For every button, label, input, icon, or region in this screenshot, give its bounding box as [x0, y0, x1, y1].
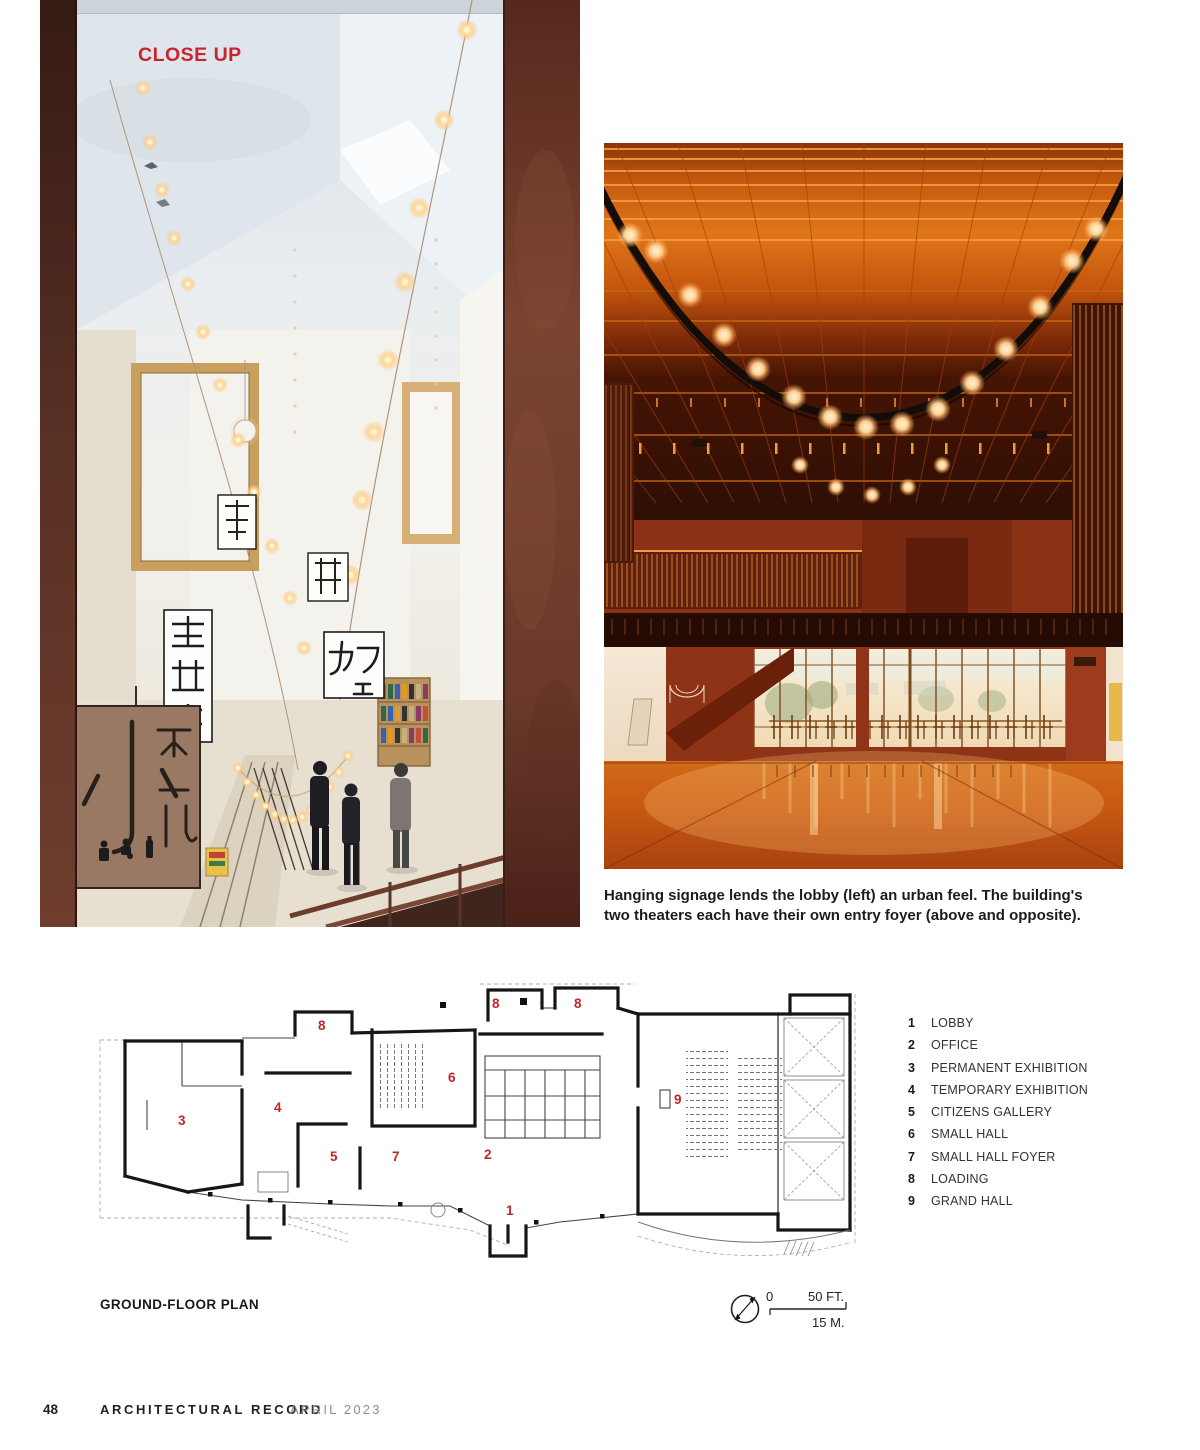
- legend-row: 5CITIZENS GALLERY: [908, 1105, 1088, 1127]
- plan-apron: [288, 1216, 850, 1256]
- legend-number: 3: [908, 1061, 931, 1075]
- svg-text:15 M.: 15 M.: [812, 1315, 845, 1330]
- legend-label: GRAND HALL: [931, 1194, 1013, 1208]
- plan-room-numbers: 34576219888: [178, 996, 682, 1218]
- grand-hall-seats-2: [738, 1052, 782, 1156]
- legend-label: PERMANENT EXHIBITION: [931, 1061, 1088, 1075]
- legend-number: 8: [908, 1172, 931, 1186]
- legend-row: 2OFFICE: [908, 1038, 1088, 1060]
- legend-number: 2: [908, 1038, 931, 1052]
- room-number-4: 4: [274, 1100, 282, 1115]
- room-number-6: 6: [448, 1070, 456, 1085]
- compass-and-scale: 0 50 FT. 15 M.: [726, 1283, 896, 1335]
- room-number-9: 9: [674, 1092, 682, 1107]
- svg-text:0: 0: [766, 1289, 773, 1304]
- legend-row: 1LOBBY: [908, 1016, 1088, 1038]
- theater-foyer-photo: [604, 143, 1123, 869]
- plan-legend: 1LOBBY2OFFICE3PERMANENT EXHIBITION4TEMPO…: [908, 1016, 1088, 1217]
- room-number-2: 2: [484, 1147, 492, 1162]
- legend-label: SMALL HALL: [931, 1127, 1008, 1141]
- legend-number: 6: [908, 1127, 931, 1141]
- close-up-heading: CLOSE UP: [138, 44, 242, 67]
- legend-number: 1: [908, 1016, 931, 1030]
- hanging-sign-small-1: [218, 495, 256, 549]
- hanging-sign-small-2: [308, 553, 348, 601]
- page-number: 48: [43, 1402, 58, 1417]
- room-number-3: 3: [178, 1113, 186, 1128]
- room-number-8: 8: [492, 996, 500, 1011]
- scale-bar: 0 50 FT. 15 M.: [766, 1289, 846, 1330]
- legend-label: CITIZENS GALLERY: [931, 1105, 1052, 1119]
- legend-label: LOBBY: [931, 1016, 974, 1030]
- legend-row: 9GRAND HALL: [908, 1194, 1088, 1216]
- legend-row: 6SMALL HALL: [908, 1127, 1088, 1149]
- backstage-cells: [784, 1018, 844, 1200]
- small-hall-seats: [376, 1042, 424, 1108]
- legend-label: TEMPORARY EXHIBITION: [931, 1083, 1088, 1097]
- photo-caption: Hanging signage lends the lobby (left) a…: [604, 886, 1084, 925]
- legend-label: SMALL HALL FOYER: [931, 1150, 1056, 1164]
- plan-title: GROUND-FLOOR PLAN: [100, 1297, 259, 1312]
- legend-number: 4: [908, 1083, 931, 1097]
- room-number-7: 7: [392, 1149, 400, 1164]
- magazine-page: CLOSE UP: [0, 0, 1200, 1450]
- svg-text:50 FT.: 50 FT.: [808, 1289, 844, 1304]
- issue-date: APRIL 2023: [290, 1402, 382, 1417]
- legend-number: 9: [908, 1194, 931, 1208]
- foyer-photo-art: [604, 143, 1123, 869]
- legend-row: 8LOADING: [908, 1172, 1088, 1194]
- cafe-sign: [324, 632, 384, 698]
- lobby-photo-art: [40, 0, 580, 927]
- legend-number: 7: [908, 1150, 931, 1164]
- legend-row: 7SMALL HALL FOYER: [908, 1150, 1088, 1172]
- grand-hall-seats: [686, 1050, 728, 1158]
- room-number-8: 8: [318, 1018, 326, 1033]
- legend-label: OFFICE: [931, 1038, 978, 1052]
- caption-line-1: Hanging signage lends the lobby (left) a…: [604, 886, 1084, 906]
- lobby-photo: CLOSE UP: [40, 0, 580, 927]
- legend-row: 3PERMANENT EXHIBITION: [908, 1061, 1088, 1083]
- north-arrow-icon: [732, 1296, 759, 1323]
- legend-row: 4TEMPORARY EXHIBITION: [908, 1083, 1088, 1105]
- legend-label: LOADING: [931, 1172, 989, 1186]
- caption-line-2: two theaters each have their own entry f…: [604, 906, 1084, 926]
- room-number-5: 5: [330, 1149, 338, 1164]
- room-number-1: 1: [506, 1203, 514, 1218]
- room-number-8: 8: [574, 996, 582, 1011]
- ground-floor-plan: 34576219888: [90, 978, 870, 1278]
- legend-number: 5: [908, 1105, 931, 1119]
